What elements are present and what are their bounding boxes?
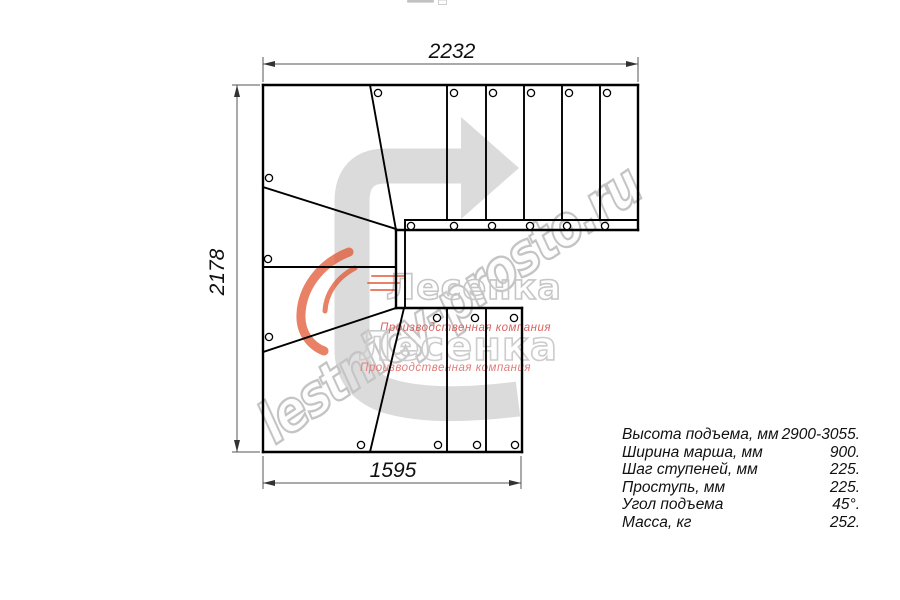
spec-label: Угол подъема [622,496,723,514]
spec-row: Масса, кг 252. [622,514,860,532]
spec-value: 225. [830,461,860,479]
spec-value: 252. [830,514,860,532]
spec-value: 2900-3055. [782,426,860,444]
spec-row: Высота подъема, мм 2900-3055. [622,426,860,444]
dimension-label-top: 2232 [428,40,476,63]
stair-outline [263,85,638,452]
spec-label: Проступь, мм [622,479,725,497]
spec-value: 900. [830,444,860,462]
dimension-lines [232,57,638,489]
spec-label: Шаг ступеней, мм [622,461,758,479]
tread-lines [263,85,638,452]
spec-label: Ширина марша, мм [622,444,763,462]
winder-edge [263,308,396,352]
winder-edge [370,85,396,230]
spec-list: Высота подъема, мм 2900-3055. Ширина мар… [622,426,860,532]
dimension-label-left: 2178 [206,248,229,296]
spec-row: Ширина марша, мм 900. [622,444,860,462]
spec-row: Шаг ступеней, мм 225. [622,461,860,479]
stair-drawing-page: lestnicy-prosto.ru Лесенка Производствен… [0,0,900,600]
spec-row: Угол подъема 45°. [622,496,860,514]
screw-holes [264,89,610,448]
dimension-arrowheads [234,61,638,486]
spec-value: 45°. [832,496,860,514]
cropped-top-text-fragment [407,0,447,5]
spec-label: Масса, кг [622,514,691,532]
spec-row: Проступь, мм 225. [622,479,860,497]
winder-edge [370,308,404,452]
dimension-label-bottom: 1595 [370,459,417,482]
spec-label: Высота подъема, мм [622,426,779,444]
winder-edge [263,187,396,229]
spec-value: 225. [830,479,860,497]
